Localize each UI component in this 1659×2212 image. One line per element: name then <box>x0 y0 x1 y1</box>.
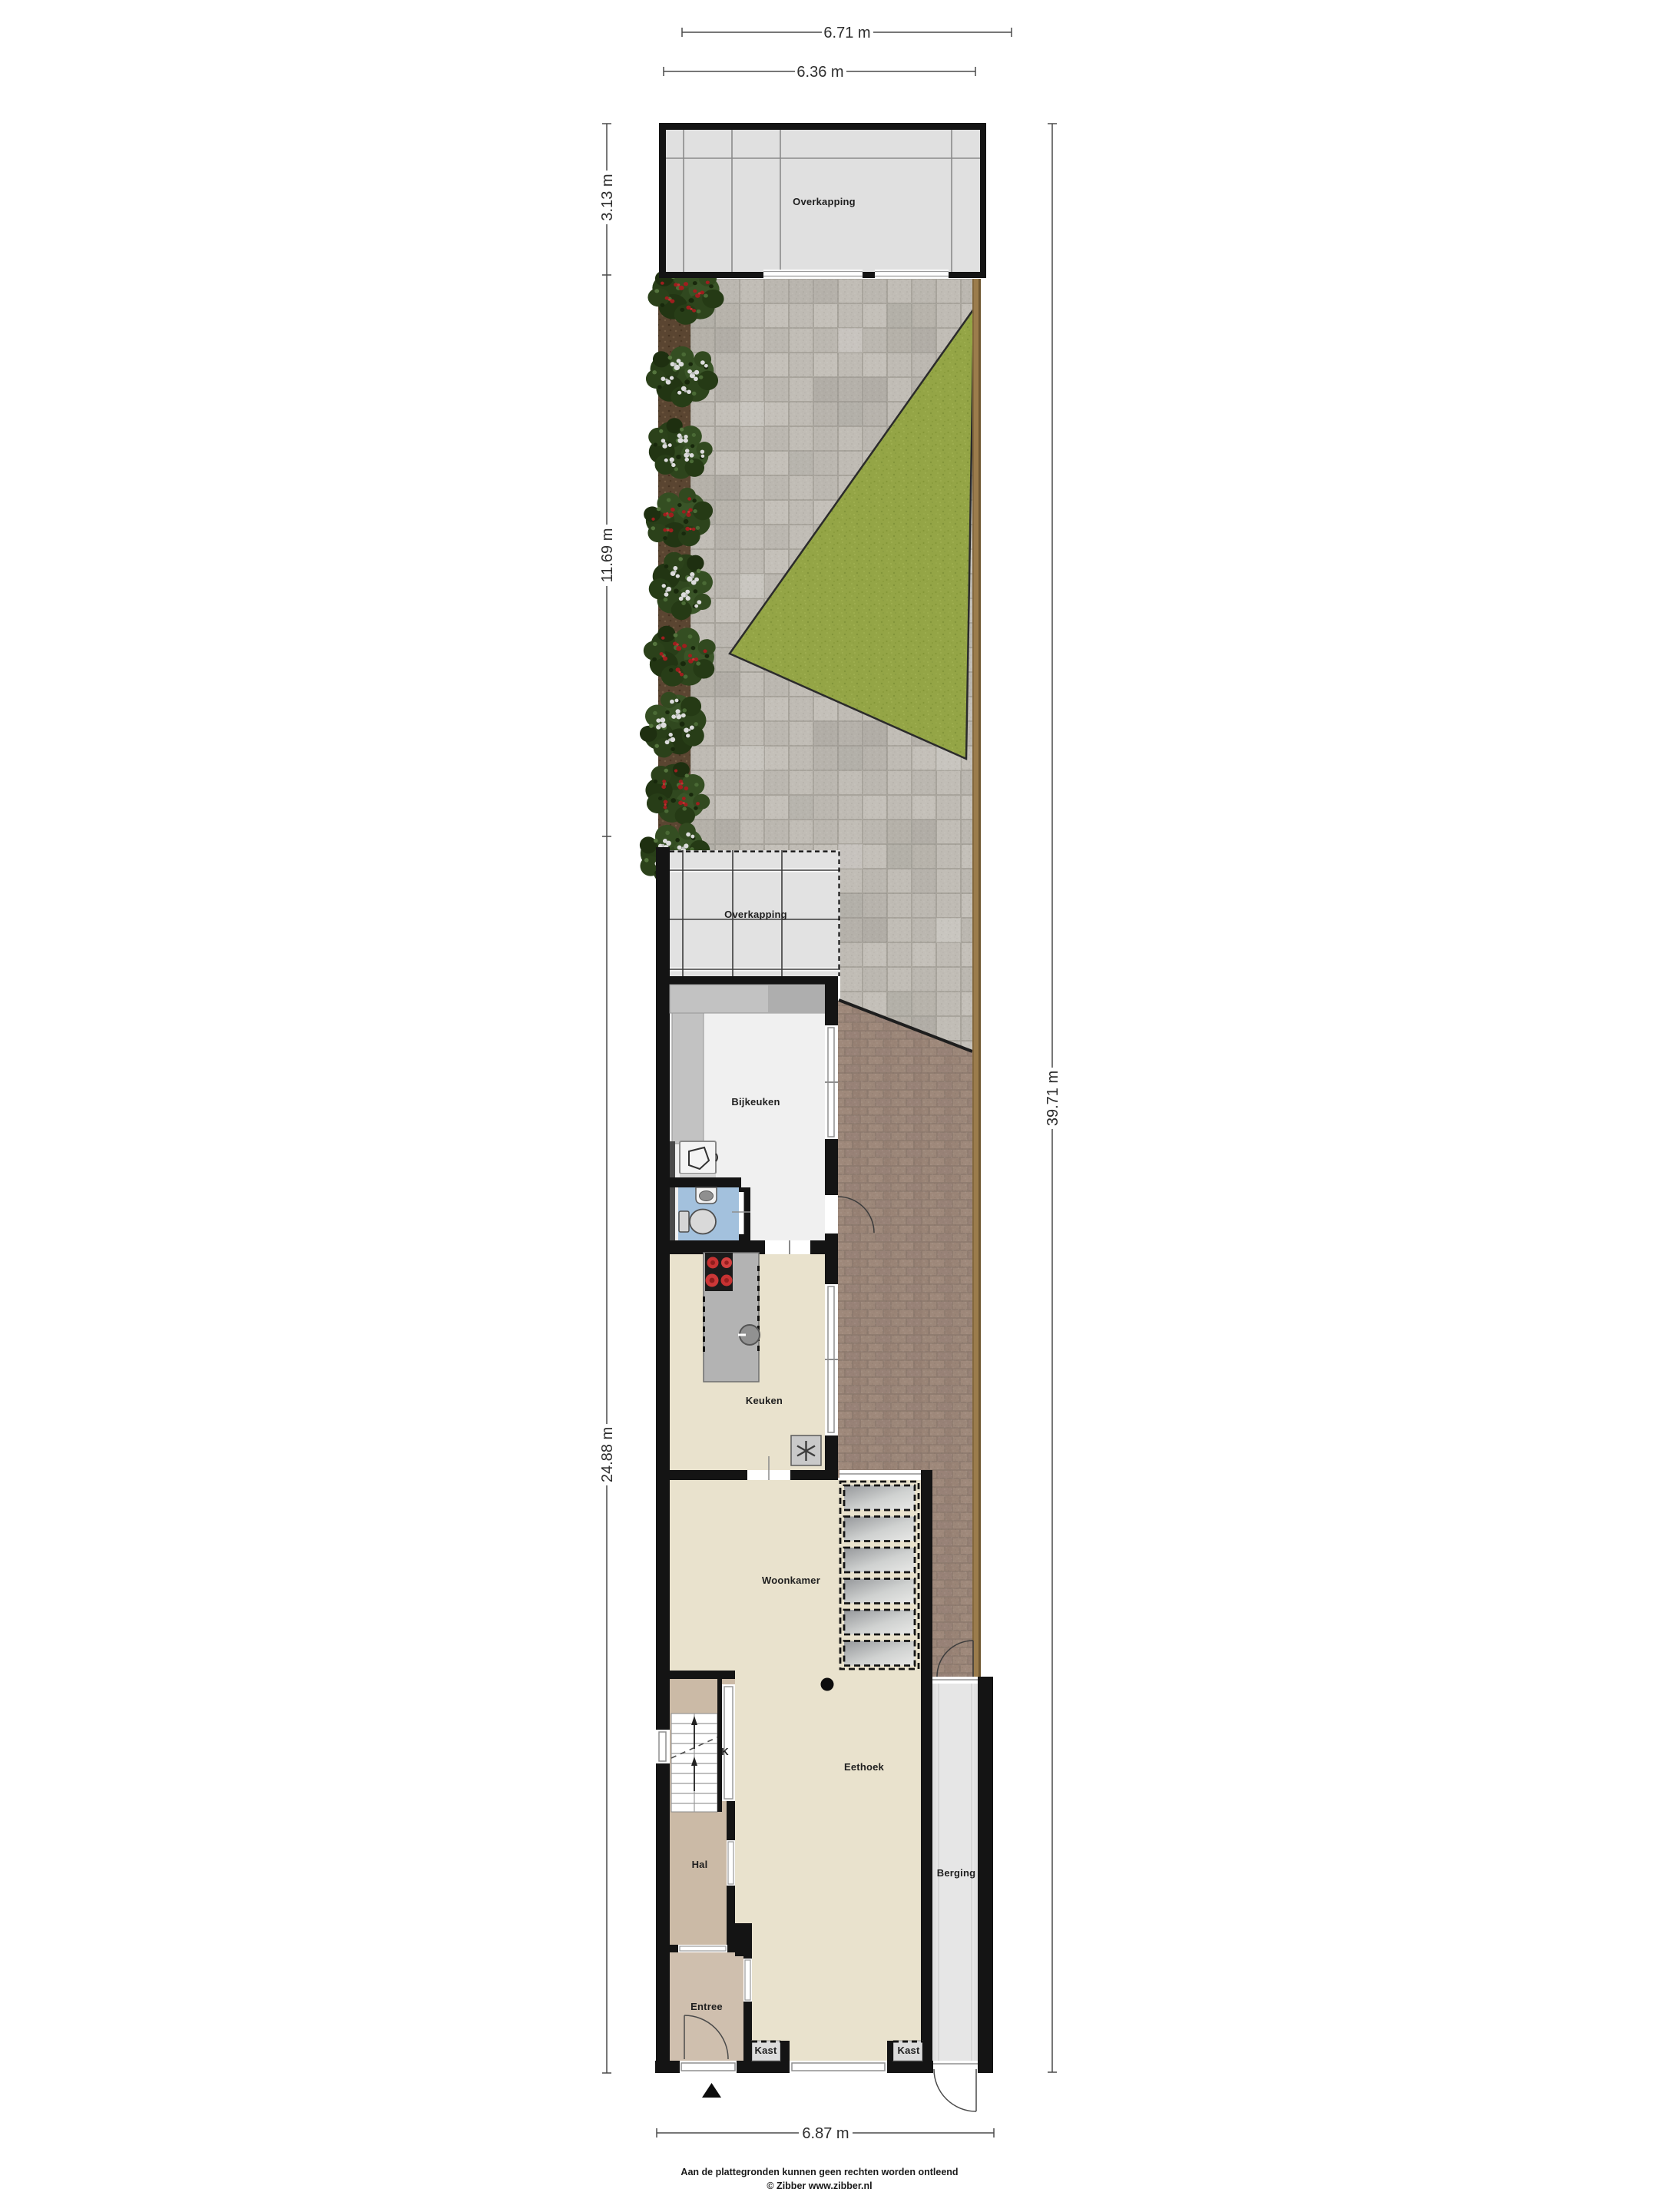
svg-text:24.88 m: 24.88 m <box>599 1427 616 1482</box>
svg-text:Aan de plattegronden kunnen ge: Aan de plattegronden kunnen geen rechten… <box>680 2167 958 2177</box>
svg-text:3.13 m: 3.13 m <box>599 174 616 220</box>
svg-text:Overkapping: Overkapping <box>724 909 787 920</box>
svg-text:Hal: Hal <box>692 1859 708 1870</box>
svg-text:Entree: Entree <box>690 2001 723 2012</box>
svg-text:© Zibber www.zibber.nl: © Zibber www.zibber.nl <box>767 2181 872 2191</box>
svg-text:Kast: Kast <box>898 2045 920 2056</box>
svg-text:6.87 m: 6.87 m <box>802 2125 849 2142</box>
svg-text:K: K <box>721 1746 729 1757</box>
svg-text:Bijkeuken: Bijkeuken <box>731 1096 780 1108</box>
svg-text:39.71 m: 39.71 m <box>1045 1071 1061 1126</box>
svg-text:6.36 m: 6.36 m <box>796 64 843 81</box>
svg-text:Berging: Berging <box>937 1867 976 1879</box>
svg-text:Woonkamer: Woonkamer <box>762 1575 820 1586</box>
svg-text:Eethoek: Eethoek <box>844 1761 885 1773</box>
svg-text:6.71 m: 6.71 m <box>823 25 870 41</box>
svg-text:11.69 m: 11.69 m <box>599 528 616 583</box>
svg-text:Keuken: Keuken <box>746 1395 783 1406</box>
svg-text:Kast: Kast <box>755 2045 777 2056</box>
svg-text:Overkapping: Overkapping <box>793 196 856 207</box>
